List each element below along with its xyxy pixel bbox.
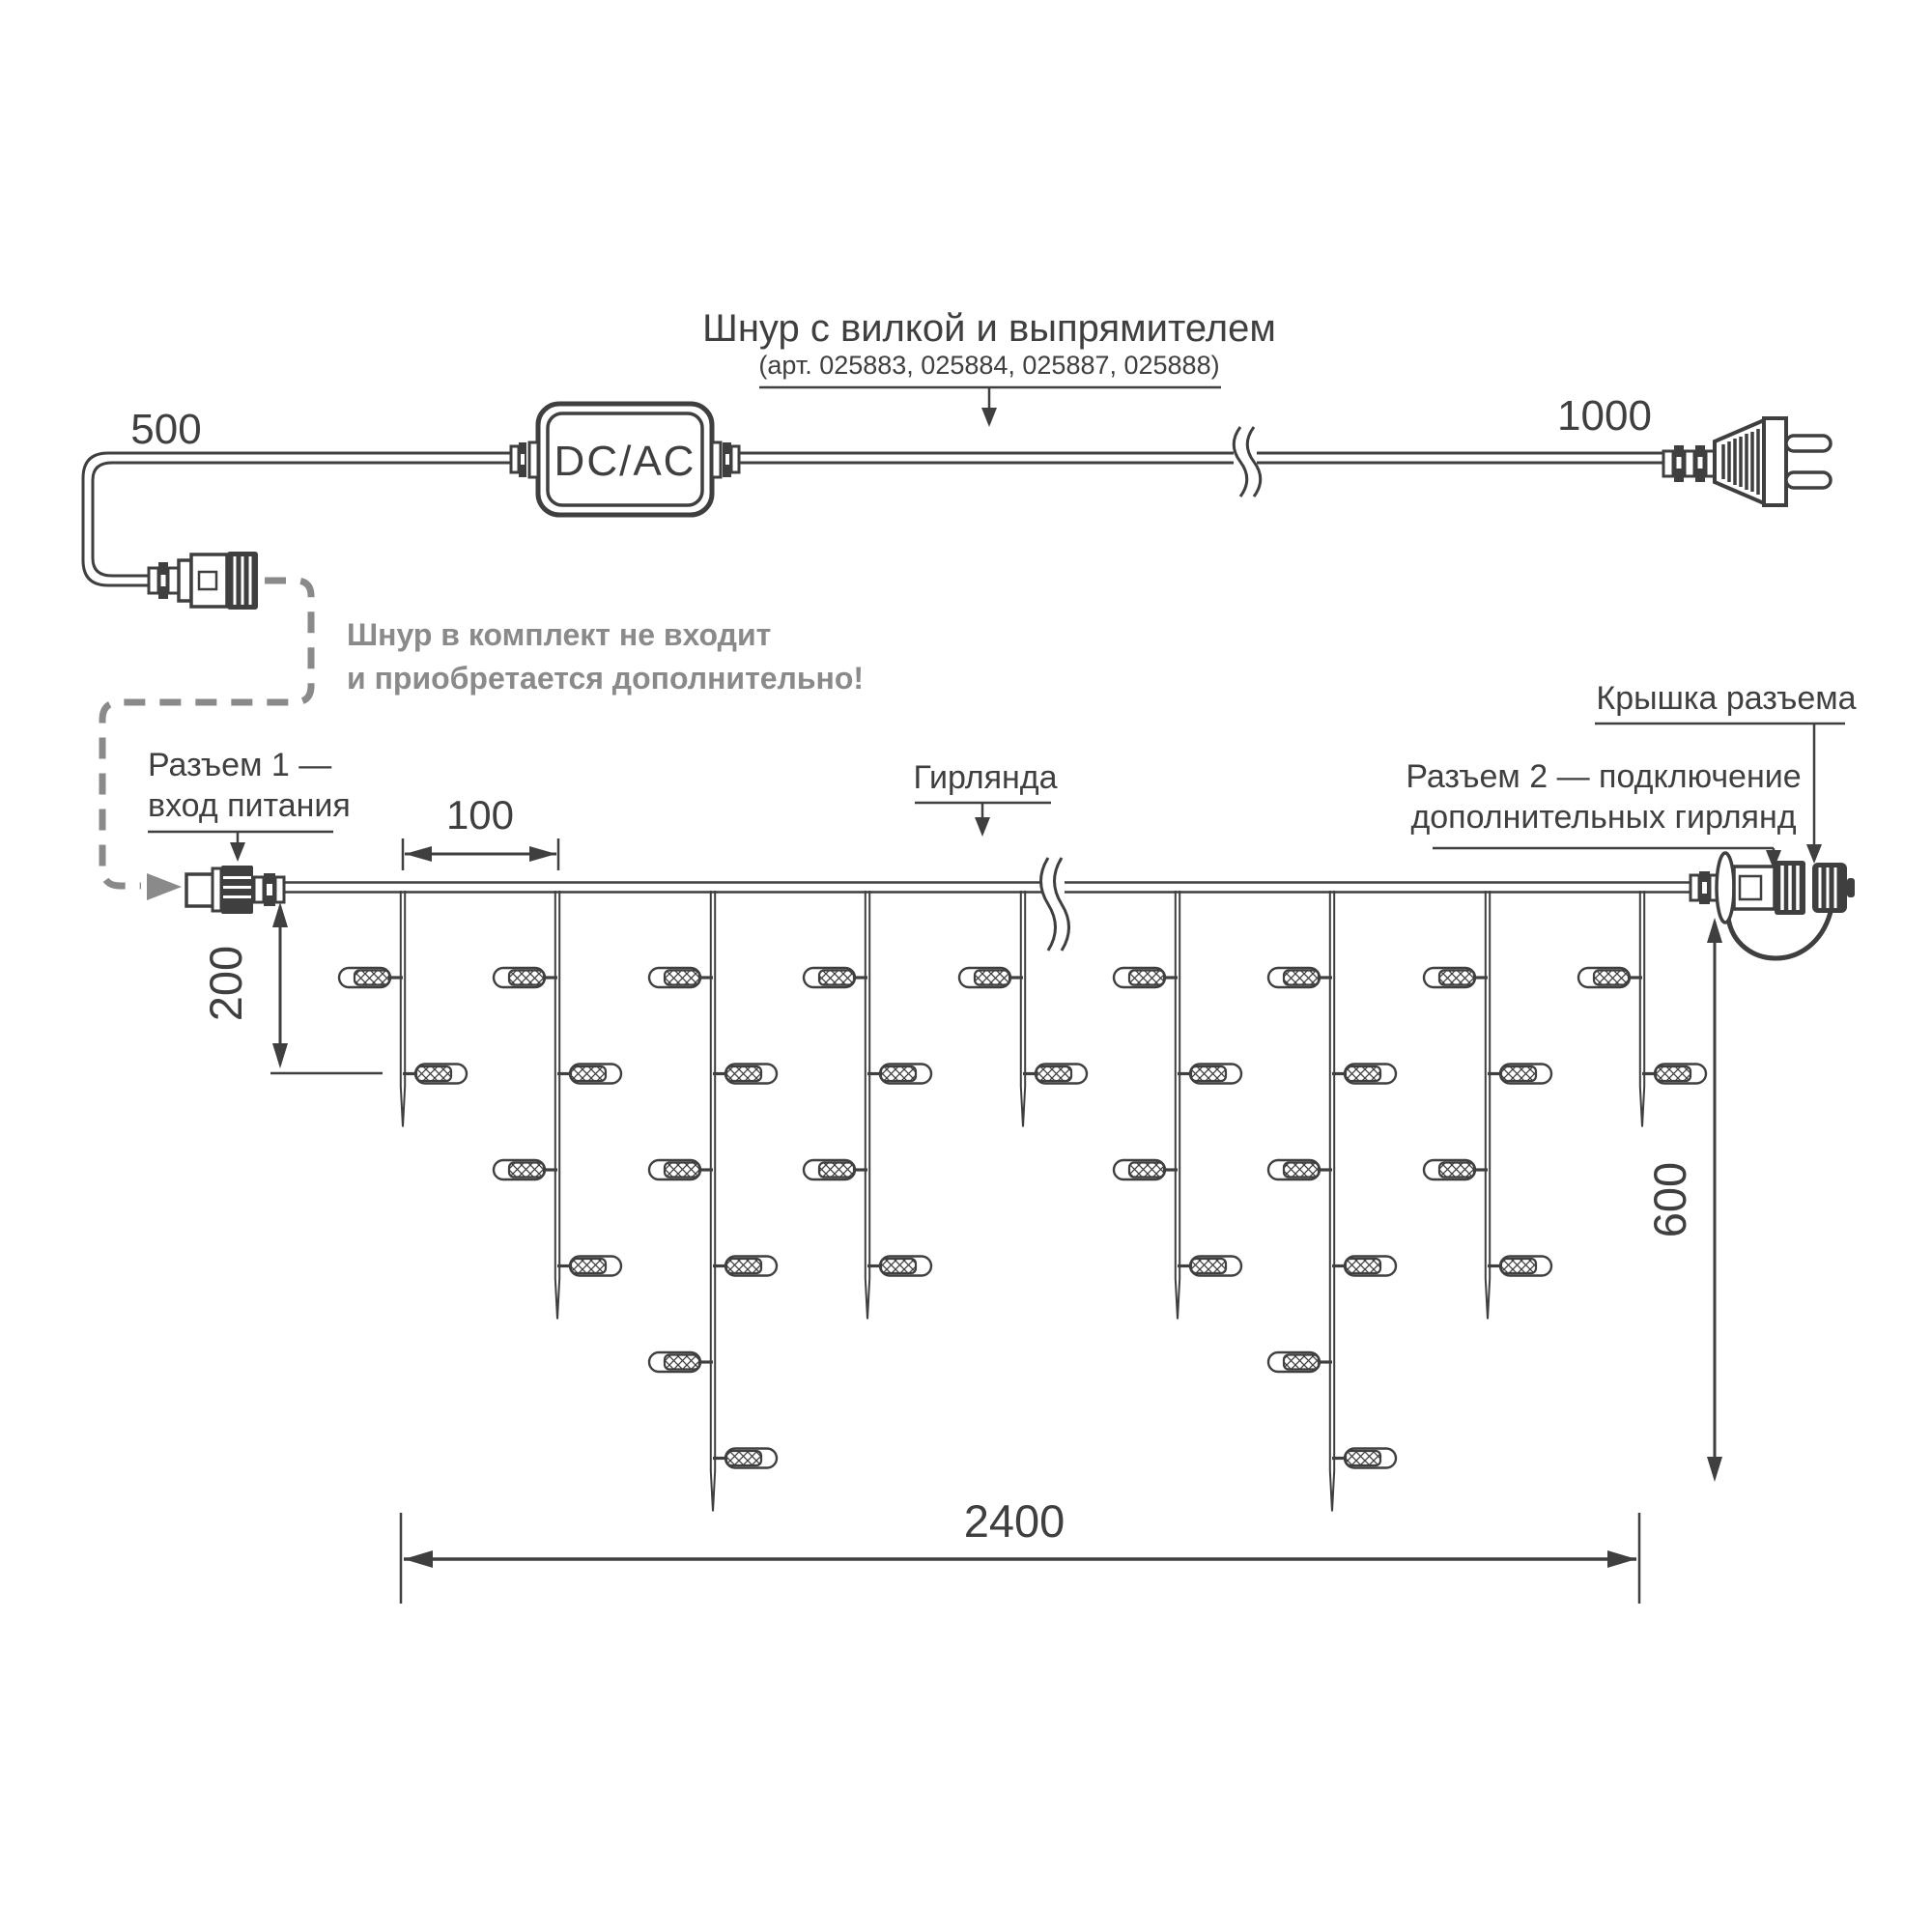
led-bulb-icon — [649, 968, 713, 987]
led-bulb-icon — [804, 1160, 867, 1179]
led-bulb-icon — [557, 1257, 621, 1276]
cap-label: Крышка разъема — [1596, 680, 1856, 717]
plug-icon — [1663, 418, 1831, 505]
icicle-drop — [494, 891, 621, 1320]
connector2-label-line1: Разъем 2 — подключение — [1406, 758, 1801, 795]
bulb-hatch — [881, 1259, 916, 1273]
led-bulb-icon — [713, 1449, 777, 1468]
led-bulb-icon — [867, 1257, 931, 1276]
bulb-hatch — [1191, 1259, 1226, 1273]
bulb-hatch — [1346, 1259, 1380, 1273]
drop-wire — [401, 891, 405, 1127]
bulb-hatch — [416, 1066, 451, 1081]
power-cord-right-segment — [739, 427, 1663, 497]
arrow-left-icon — [404, 1550, 433, 1568]
led-bulb-icon — [1268, 1352, 1332, 1372]
bulb-hatch — [665, 1355, 699, 1370]
cord-title: Шнур с вилкой и выпрямителем — [702, 307, 1276, 350]
power-cord-left-segment — [83, 453, 511, 585]
led-bulb-icon — [1332, 1449, 1396, 1468]
arrow-down-icon — [1707, 1457, 1722, 1482]
garland-callout: Гирлянда — [913, 759, 1057, 837]
led-bulb-icon — [1114, 1160, 1178, 1179]
bulb-hatch — [819, 971, 854, 985]
bulb-hatch — [819, 1163, 854, 1178]
dim-600-label: 600 — [1644, 1162, 1695, 1237]
icicle-drops — [339, 891, 1706, 1512]
dim-600: 600 — [1644, 918, 1722, 1482]
led-bulb-icon — [1424, 1160, 1488, 1179]
led-bulb-icon — [1488, 1257, 1551, 1276]
arrow-down-icon — [981, 408, 997, 427]
led-bulb-icon — [494, 968, 557, 987]
bulb-hatch — [1191, 1066, 1226, 1081]
led-bulb-icon — [1488, 1065, 1551, 1084]
arrow-right-icon — [1607, 1550, 1636, 1568]
drop-wire — [1486, 891, 1490, 1320]
led-bulb-icon — [1268, 1160, 1332, 1179]
icicle-drop — [649, 891, 777, 1512]
power-cord-assembly: 500 DC/AC — [83, 307, 1831, 696]
garland-assembly — [186, 853, 1855, 1512]
cord-subtitle: (арт. 025883, 025884, 025887, 025888) — [758, 351, 1219, 380]
led-bulb-icon — [1424, 968, 1488, 987]
dim-1000-label: 1000 — [1557, 392, 1652, 440]
cap-tether-icon — [1728, 912, 1831, 958]
arrow-down-icon — [230, 842, 245, 862]
drop-wire — [1330, 891, 1334, 1512]
cord-note: Шнур в комплект не входит и приобретаетс… — [347, 617, 864, 696]
drop-wire — [1640, 891, 1644, 1127]
led-bulb-icon — [1178, 1065, 1241, 1084]
bulb-hatch — [509, 971, 544, 985]
note-line2: и приобретается дополнительно! — [347, 661, 864, 696]
diagram-canvas: 500 DC/AC — [0, 0, 1932, 1932]
garland-label: Гирлянда — [913, 759, 1057, 796]
led-bulb-icon — [1268, 968, 1332, 987]
led-bulb-icon — [804, 968, 867, 987]
connector-cap-icon — [1812, 863, 1855, 913]
dcac-converter: DC/AC — [511, 404, 739, 515]
bulb-hatch — [355, 971, 389, 985]
bulb-hatch — [1501, 1066, 1536, 1081]
arrow-left-icon — [405, 846, 432, 862]
bulb-hatch — [665, 1163, 699, 1178]
connector2-callout: Разъем 2 — подключение дополнительных ги… — [1406, 758, 1801, 869]
connector1-label-line1: Разъем 1 — — [148, 747, 331, 783]
led-bulb-icon — [1578, 968, 1642, 987]
garland-technical-diagram: 500 DC/AC — [0, 0, 1932, 1932]
led-bulb-icon — [713, 1257, 777, 1276]
bulb-hatch — [726, 1066, 761, 1081]
led-bulb-icon — [1332, 1065, 1396, 1084]
led-bulb-icon — [1642, 1065, 1706, 1084]
drop-wire — [1021, 891, 1025, 1127]
bulb-hatch — [975, 971, 1009, 985]
led-bulb-icon — [959, 968, 1023, 987]
dim-2400: 2400 — [401, 1495, 1639, 1604]
drop-wire — [711, 891, 715, 1512]
bulb-hatch — [1501, 1259, 1536, 1273]
dcac-label: DC/AC — [554, 438, 696, 485]
drop-wire — [866, 891, 869, 1320]
icicle-drop — [804, 891, 931, 1320]
bulb-hatch — [1284, 971, 1319, 985]
led-bulb-icon — [1023, 1065, 1087, 1084]
garland-connector1-icon — [186, 866, 284, 914]
dim-200-label: 200 — [200, 946, 251, 1021]
led-bulb-icon — [557, 1065, 621, 1084]
connector1-label-line2: вход питания — [148, 787, 351, 824]
bulb-hatch — [726, 1451, 761, 1465]
note-line1: Шнур в комплект не входит — [347, 617, 771, 652]
led-bulb-icon — [649, 1160, 713, 1179]
arrow-down-icon — [975, 817, 990, 837]
icicle-drop — [339, 891, 467, 1127]
bulb-hatch — [1439, 1163, 1474, 1178]
cord-connector-icon — [149, 552, 258, 610]
drop-wire — [555, 891, 559, 1320]
cord-callout: Шнур с вилкой и выпрямителем (арт. 02588… — [702, 307, 1276, 427]
led-bulb-icon — [339, 968, 403, 987]
bulb-hatch — [571, 1066, 606, 1081]
bulb-hatch — [1594, 971, 1629, 985]
arrow-up-icon — [1707, 918, 1722, 943]
connector2-label-line2: дополнительных гирлянд — [1410, 799, 1796, 836]
bulb-hatch — [1346, 1066, 1380, 1081]
bulb-hatch — [509, 1163, 544, 1178]
bulb-hatch — [1129, 1163, 1164, 1178]
bulb-hatch — [1037, 1066, 1071, 1081]
dim-100-label: 100 — [446, 792, 514, 838]
dashed-connection-path — [102, 581, 311, 900]
dim-500-label: 500 — [130, 406, 201, 453]
dim-100: 100 — [403, 792, 558, 870]
led-bulb-icon — [713, 1065, 777, 1084]
connector1-callout: Разъем 1 — вход питания — [148, 747, 351, 862]
bulb-hatch — [1439, 971, 1474, 985]
bulb-hatch — [881, 1066, 916, 1081]
cord-break-icon — [1234, 427, 1247, 497]
led-bulb-icon — [867, 1065, 931, 1084]
led-bulb-icon — [403, 1065, 467, 1084]
arrow-down-icon — [272, 1043, 288, 1068]
led-bulb-icon — [1332, 1257, 1396, 1276]
bulb-hatch — [1284, 1355, 1319, 1370]
garland-wire — [284, 858, 1690, 951]
bulb-hatch — [1346, 1451, 1380, 1465]
bulb-hatch — [571, 1259, 606, 1273]
drop-wire — [1176, 891, 1179, 1320]
icicle-drop — [1268, 891, 1396, 1512]
gray-arrow-right-icon — [147, 873, 182, 900]
bulb-hatch — [1656, 1066, 1690, 1081]
icicle-drop — [1424, 891, 1551, 1320]
bulb-hatch — [665, 971, 699, 985]
icicle-drop — [1578, 891, 1706, 1127]
bulb-hatch — [726, 1259, 761, 1273]
led-bulb-icon — [494, 1160, 557, 1179]
bulb-hatch — [1284, 1163, 1319, 1178]
led-bulb-icon — [1114, 968, 1178, 987]
wire-break-icon — [1041, 858, 1056, 951]
led-bulb-icon — [1178, 1257, 1241, 1276]
arrow-down-icon — [1806, 844, 1822, 864]
dim-2400-label: 2400 — [964, 1495, 1065, 1547]
arrow-right-icon — [529, 846, 556, 862]
bulb-hatch — [1129, 971, 1164, 985]
led-bulb-icon — [649, 1352, 713, 1372]
icicle-drop — [1114, 891, 1241, 1320]
